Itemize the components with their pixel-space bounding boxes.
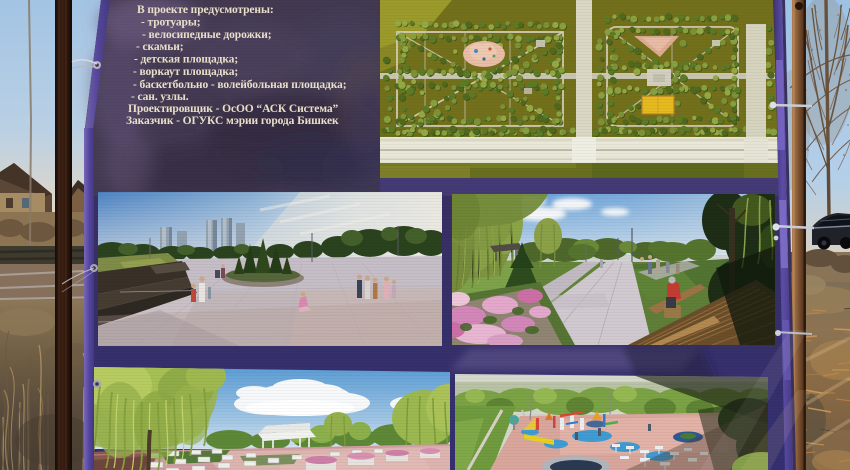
svg-text:Заказчик - ОГУКС мэрии города: Заказчик - ОГУКС мэрии города Бишкек xyxy=(126,115,339,127)
svg-text:- баскетбольно - волейбольная: - баскетбольно - волейбольная площадка; xyxy=(133,79,346,91)
svg-text:- скамьи;: - скамьи; xyxy=(136,41,183,53)
svg-text:- велосипедные дорожки;: - велосипедные дорожки; xyxy=(142,29,271,41)
svg-text:- сан. узлы.: - сан. узлы. xyxy=(131,91,189,103)
svg-text:Проектировщик - ОсОО “АСК Сист: Проектировщик - ОсОО “АСК Система” xyxy=(128,103,339,115)
svg-text:- воркаут площадка;: - воркаут площадка; xyxy=(133,66,238,78)
svg-text:В проекте предусмотрены:: В проекте предусмотрены: xyxy=(137,4,274,16)
svg-text:- детская площадка;: - детская площадка; xyxy=(134,54,238,66)
svg-text:- тротуары;: - тротуары; xyxy=(141,16,200,28)
